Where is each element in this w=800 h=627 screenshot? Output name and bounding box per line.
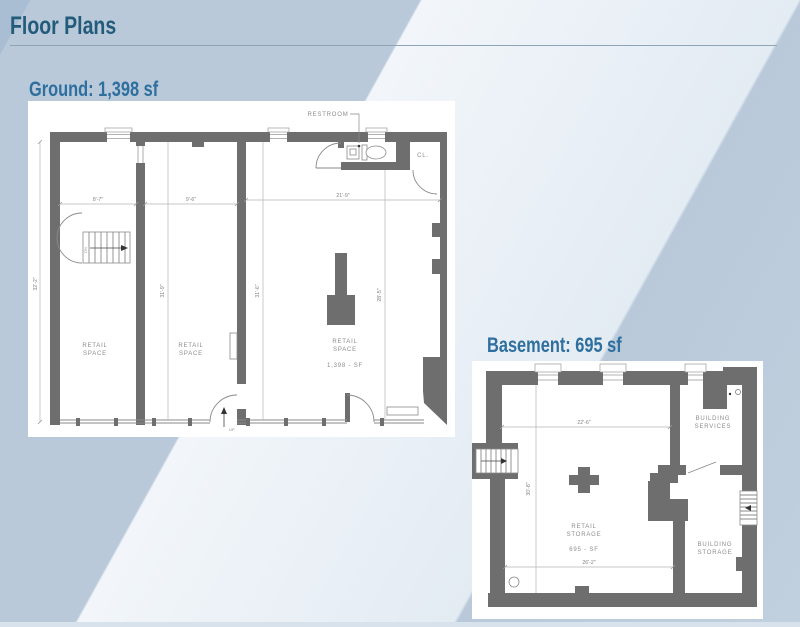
basement-stair-right	[740, 491, 757, 525]
building-storage-label-line1: BUILDING	[698, 542, 733, 548]
basement-floor-plan-drawing: 22'-6" 26'-2" 30'-8" BUILDING SERVICES R…	[472, 361, 763, 619]
building-storage-label-line2: STORAGE	[698, 550, 733, 556]
ground-doors	[57, 143, 437, 422]
retail3-label-line1: RETAIL	[332, 339, 357, 345]
retail2-label-line1: RETAIL	[178, 343, 203, 349]
retail1-label-line1: RETAIL	[82, 343, 107, 349]
basement-stair-left	[476, 449, 518, 473]
page-title: Floor Plans	[10, 12, 116, 41]
restroom-label: RESTROOM	[307, 112, 348, 118]
basement-area-label: 695 - SF	[569, 547, 598, 553]
basement-walls	[472, 367, 757, 607]
basement-doors	[688, 462, 716, 473]
dim-32-2: 32'-2"	[33, 277, 39, 290]
retail-storage-label-line2: STORAGE	[567, 532, 602, 538]
bottom-accent-strip	[0, 622, 800, 627]
retail2-label-line2: SPACE	[179, 351, 203, 357]
display-case-2	[387, 407, 418, 415]
services-label-line1: BUILDING	[696, 416, 731, 422]
dim-31-6: 31'-6"	[255, 284, 261, 297]
services-label-line2: SERVICES	[695, 424, 732, 430]
ground-walls	[50, 132, 447, 425]
ground-heading: Ground: 1,398 sf	[29, 78, 158, 102]
closet-label: CL.	[417, 153, 429, 159]
dim-28-5: 28'-5"	[377, 288, 383, 301]
entrance-up-arrow: UP	[221, 407, 235, 432]
retail1-label-line2: SPACE	[83, 351, 107, 357]
title-divider	[10, 45, 777, 46]
dim-8-7: 8'-7"	[93, 197, 103, 203]
basement-floor-plan: 22'-6" 26'-2" 30'-8" BUILDING SERVICES R…	[472, 361, 763, 619]
ground-stair: DN	[83, 232, 130, 263]
dim-31-9: 31'-9"	[160, 284, 166, 297]
display-case-1	[230, 333, 237, 359]
dim-21-9: 21'-9"	[336, 193, 349, 199]
retail3-label-line2: SPACE	[333, 347, 357, 353]
ground-floor-plan: DN UP 8'-7" 9'-6" 21'-9" 32'-2" 31'-9" 3…	[28, 101, 455, 437]
floor-plans-page: { "page": { "title": "Floor Plans" }, "g…	[0, 0, 800, 627]
ground-area-label: 1,398 - SF	[327, 363, 363, 369]
ground-floor-plan-drawing: DN UP 8'-7" 9'-6" 21'-9" 32'-2" 31'-9" 3…	[28, 101, 455, 437]
entrance-up-label: UP	[229, 427, 235, 432]
basement-heading: Basement: 695 sf	[487, 334, 622, 358]
dim-22-6: 22'-6"	[577, 420, 590, 426]
retail-storage-label-line1: RETAIL	[571, 524, 596, 530]
stair-dn-label: DN	[83, 247, 88, 253]
dim-30-8: 30'-8"	[526, 482, 532, 495]
dim-26-2: 26'-2"	[582, 560, 595, 566]
dim-9-6: 9'-6"	[186, 197, 196, 203]
